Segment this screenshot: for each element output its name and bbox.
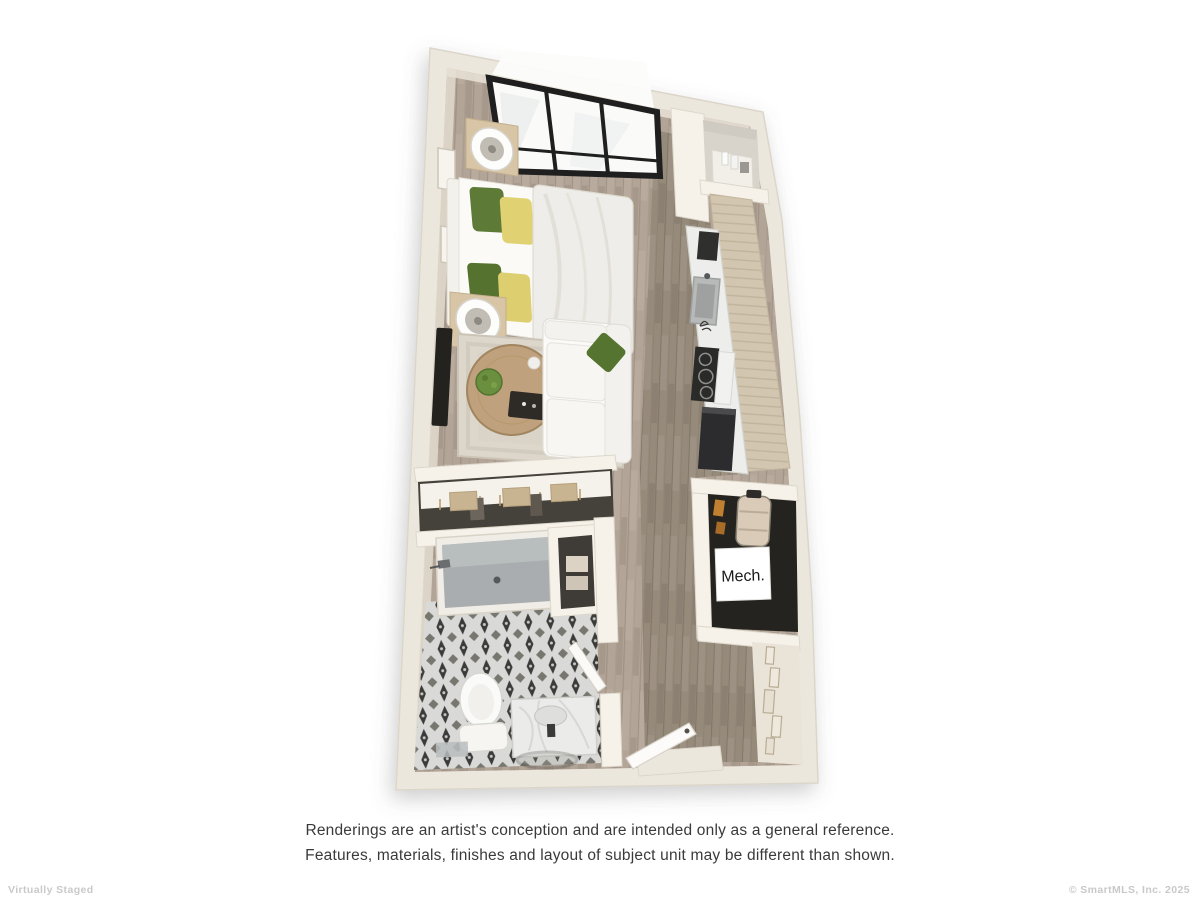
kitchen-sink [690, 272, 720, 325]
sofa [543, 318, 631, 464]
wall-art [769, 668, 779, 688]
wall-art [763, 690, 775, 714]
disclaimer: Renderings are an artist's conception an… [0, 818, 1200, 868]
alcove-bottle [731, 155, 738, 169]
alcove-box [740, 162, 749, 173]
mech-stored-item [715, 522, 726, 535]
bathroom-corridor-wall [600, 693, 622, 767]
mech-label: Mech. [715, 547, 771, 601]
pillow-yellow [499, 197, 534, 246]
virtually-staged-watermark: Virtually Staged [8, 884, 94, 896]
alcove-bottle [722, 152, 728, 165]
page: Mech. Renderings are an artist's c [0, 0, 1200, 900]
round-rug [517, 752, 577, 768]
water-heater [736, 489, 772, 547]
refrigerator [698, 407, 736, 471]
closet-box [450, 491, 478, 510]
svg-text:Mech.: Mech. [721, 567, 765, 586]
nightstand [466, 118, 518, 176]
entry-gallery-wall [752, 642, 803, 765]
door-handle [685, 729, 690, 734]
disclaimer-line1: Renderings are an artist's conception an… [0, 818, 1200, 843]
shower [430, 530, 556, 616]
disclaimer-line2: Features, materials, finishes and layout… [0, 843, 1200, 868]
table-plant [476, 369, 502, 395]
shower-drain [494, 577, 501, 584]
bath-mat [436, 741, 469, 757]
copyright-watermark: © SmartMLS, Inc. 2025 [1069, 884, 1190, 896]
mech-room: Mech. [691, 478, 800, 651]
vanity [511, 696, 597, 757]
floor-plan-image: Mech. [0, 0, 1200, 900]
wall-art [765, 647, 774, 665]
coffee-machine [697, 231, 719, 261]
bathroom [414, 517, 622, 770]
living-area [431, 318, 631, 468]
closet-clothes [529, 494, 542, 517]
towels [566, 576, 588, 590]
towels [566, 556, 588, 572]
closet-box [551, 483, 578, 501]
wall-art [771, 716, 781, 738]
bathroom-corridor-wall [594, 517, 618, 643]
table-cup [528, 357, 540, 369]
closet-box [503, 487, 531, 506]
floor-plan-svg: Mech. [0, 0, 1200, 900]
vanity-faucet [547, 724, 555, 737]
wall-art [765, 738, 774, 755]
stove [691, 346, 736, 404]
shower-head [438, 559, 451, 569]
